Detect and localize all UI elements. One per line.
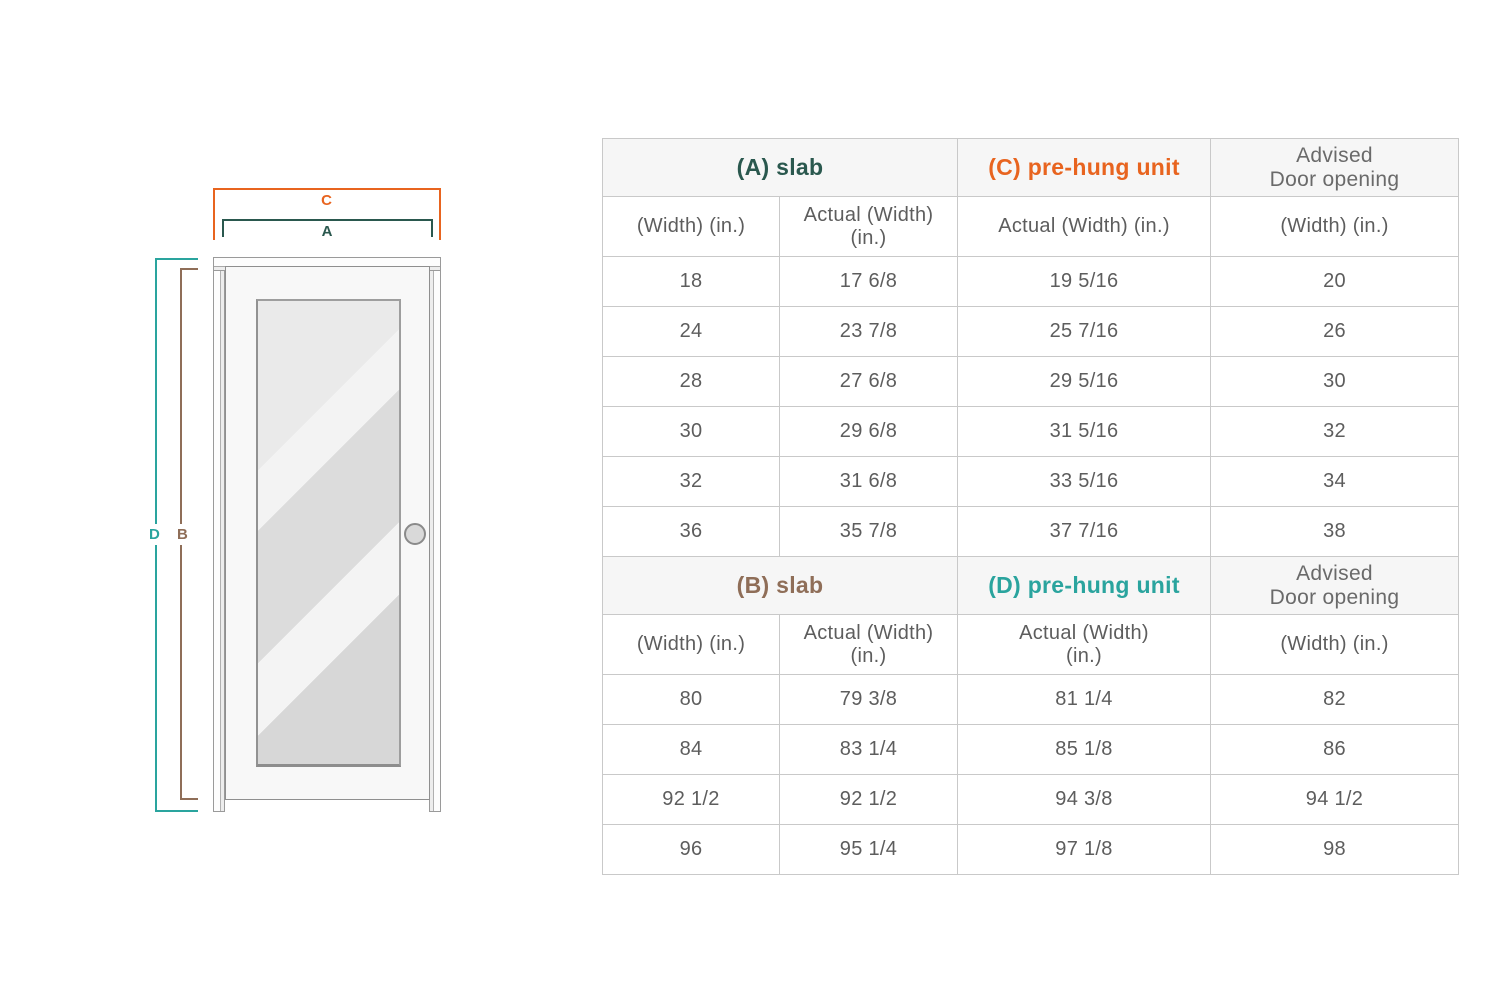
table-row: 2827 6/829 5/1630 <box>603 357 1459 407</box>
section-2-header-row: (B) slab(D) pre-hung unitAdvised Door op… <box>603 557 1459 615</box>
size-value-cell: 24 <box>603 307 780 357</box>
size-value-cell: 19 5/16 <box>958 257 1211 307</box>
table-row: 8079 3/881 1/482 <box>603 675 1459 725</box>
size-value-cell: 79 3/8 <box>780 675 958 725</box>
dimension-a-bracket: A <box>222 219 433 237</box>
size-value-cell: 86 <box>1211 725 1459 775</box>
size-value-cell: 85 1/8 <box>958 725 1211 775</box>
column-subheader-cell: Actual (Width) (in.) <box>958 615 1211 675</box>
size-value-cell: 31 6/8 <box>780 457 958 507</box>
table-row: 9695 1/497 1/898 <box>603 825 1459 875</box>
section-2-subheader-row: (Width) (in.)Actual (Width) (in.)Actual … <box>603 615 1459 675</box>
door-frame-right-jamb <box>429 257 441 812</box>
size-value-cell: 33 5/16 <box>958 457 1211 507</box>
size-value-cell: 96 <box>603 825 780 875</box>
size-value-cell: 34 <box>1211 457 1459 507</box>
table-row: 8483 1/485 1/886 <box>603 725 1459 775</box>
table-row: 3635 7/837 7/1638 <box>603 507 1459 557</box>
size-value-cell: 95 1/4 <box>780 825 958 875</box>
table-row: 92 1/292 1/294 3/894 1/2 <box>603 775 1459 825</box>
group-header-cell: (D) pre-hung unit <box>958 557 1211 615</box>
dimension-b-label: B <box>175 524 190 545</box>
size-value-cell: 27 6/8 <box>780 357 958 407</box>
door-knob <box>404 523 426 545</box>
door-frame-left-jamb <box>213 257 225 812</box>
size-value-cell: 80 <box>603 675 780 725</box>
size-value-cell: 31 5/16 <box>958 407 1211 457</box>
size-value-cell: 25 7/16 <box>958 307 1211 357</box>
size-table-body: (A) slab(C) pre-hung unitAdvised Door op… <box>603 139 1459 875</box>
size-value-cell: 23 7/8 <box>780 307 958 357</box>
dimension-a-label: A <box>322 221 334 239</box>
dimension-d-label: D <box>147 524 162 545</box>
size-value-cell: 36 <box>603 507 780 557</box>
group-header-cell: (B) slab <box>603 557 958 615</box>
group-header-cell: Advised Door opening <box>1211 557 1459 615</box>
column-subheader-cell: (Width) (in.) <box>603 615 780 675</box>
column-subheader-cell: (Width) (in.) <box>1211 197 1459 257</box>
column-subheader-cell: (Width) (in.) <box>1211 615 1459 675</box>
size-value-cell: 32 <box>1211 407 1459 457</box>
size-value-cell: 28 <box>603 357 780 407</box>
size-table: (A) slab(C) pre-hung unitAdvised Door op… <box>602 138 1459 875</box>
dimension-c-label: C <box>321 190 333 208</box>
size-value-cell: 29 5/16 <box>958 357 1211 407</box>
size-value-cell: 29 6/8 <box>780 407 958 457</box>
table-row: 3231 6/833 5/1634 <box>603 457 1459 507</box>
size-value-cell: 97 1/8 <box>958 825 1211 875</box>
size-value-cell: 81 1/4 <box>958 675 1211 725</box>
group-header-cell: (A) slab <box>603 139 958 197</box>
size-value-cell: 32 <box>603 457 780 507</box>
size-value-cell: 92 1/2 <box>780 775 958 825</box>
size-value-cell: 30 <box>603 407 780 457</box>
group-header-cell: Advised Door opening <box>1211 139 1459 197</box>
door-size-infographic: C A D B (A) slab(C) pre-hung unitAdvised… <box>0 0 1501 1000</box>
size-value-cell: 20 <box>1211 257 1459 307</box>
table-row: 1817 6/819 5/1620 <box>603 257 1459 307</box>
group-header-cell: (C) pre-hung unit <box>958 139 1211 197</box>
size-value-cell: 18 <box>603 257 780 307</box>
size-value-cell: 83 1/4 <box>780 725 958 775</box>
section-1-header-row: (A) slab(C) pre-hung unitAdvised Door op… <box>603 139 1459 197</box>
column-subheader-cell: (Width) (in.) <box>603 197 780 257</box>
size-value-cell: 94 3/8 <box>958 775 1211 825</box>
size-value-cell: 35 7/8 <box>780 507 958 557</box>
size-value-cell: 84 <box>603 725 780 775</box>
size-value-cell: 94 1/2 <box>1211 775 1459 825</box>
door-size-table-container: (A) slab(C) pre-hung unitAdvised Door op… <box>602 138 1458 875</box>
table-row: 2423 7/825 7/1626 <box>603 307 1459 357</box>
size-value-cell: 38 <box>1211 507 1459 557</box>
size-value-cell: 92 1/2 <box>603 775 780 825</box>
door-glass-panel <box>256 299 401 767</box>
column-subheader-cell: Actual (Width) (in.) <box>780 197 958 257</box>
column-subheader-cell: Actual (Width) (in.) <box>780 615 958 675</box>
size-value-cell: 26 <box>1211 307 1459 357</box>
size-value-cell: 98 <box>1211 825 1459 875</box>
size-value-cell: 17 6/8 <box>780 257 958 307</box>
size-value-cell: 30 <box>1211 357 1459 407</box>
size-value-cell: 82 <box>1211 675 1459 725</box>
section-1-subheader-row: (Width) (in.)Actual (Width) (in.)Actual … <box>603 197 1459 257</box>
table-row: 3029 6/831 5/1632 <box>603 407 1459 457</box>
column-subheader-cell: Actual (Width) (in.) <box>958 197 1211 257</box>
size-value-cell: 37 7/16 <box>958 507 1211 557</box>
